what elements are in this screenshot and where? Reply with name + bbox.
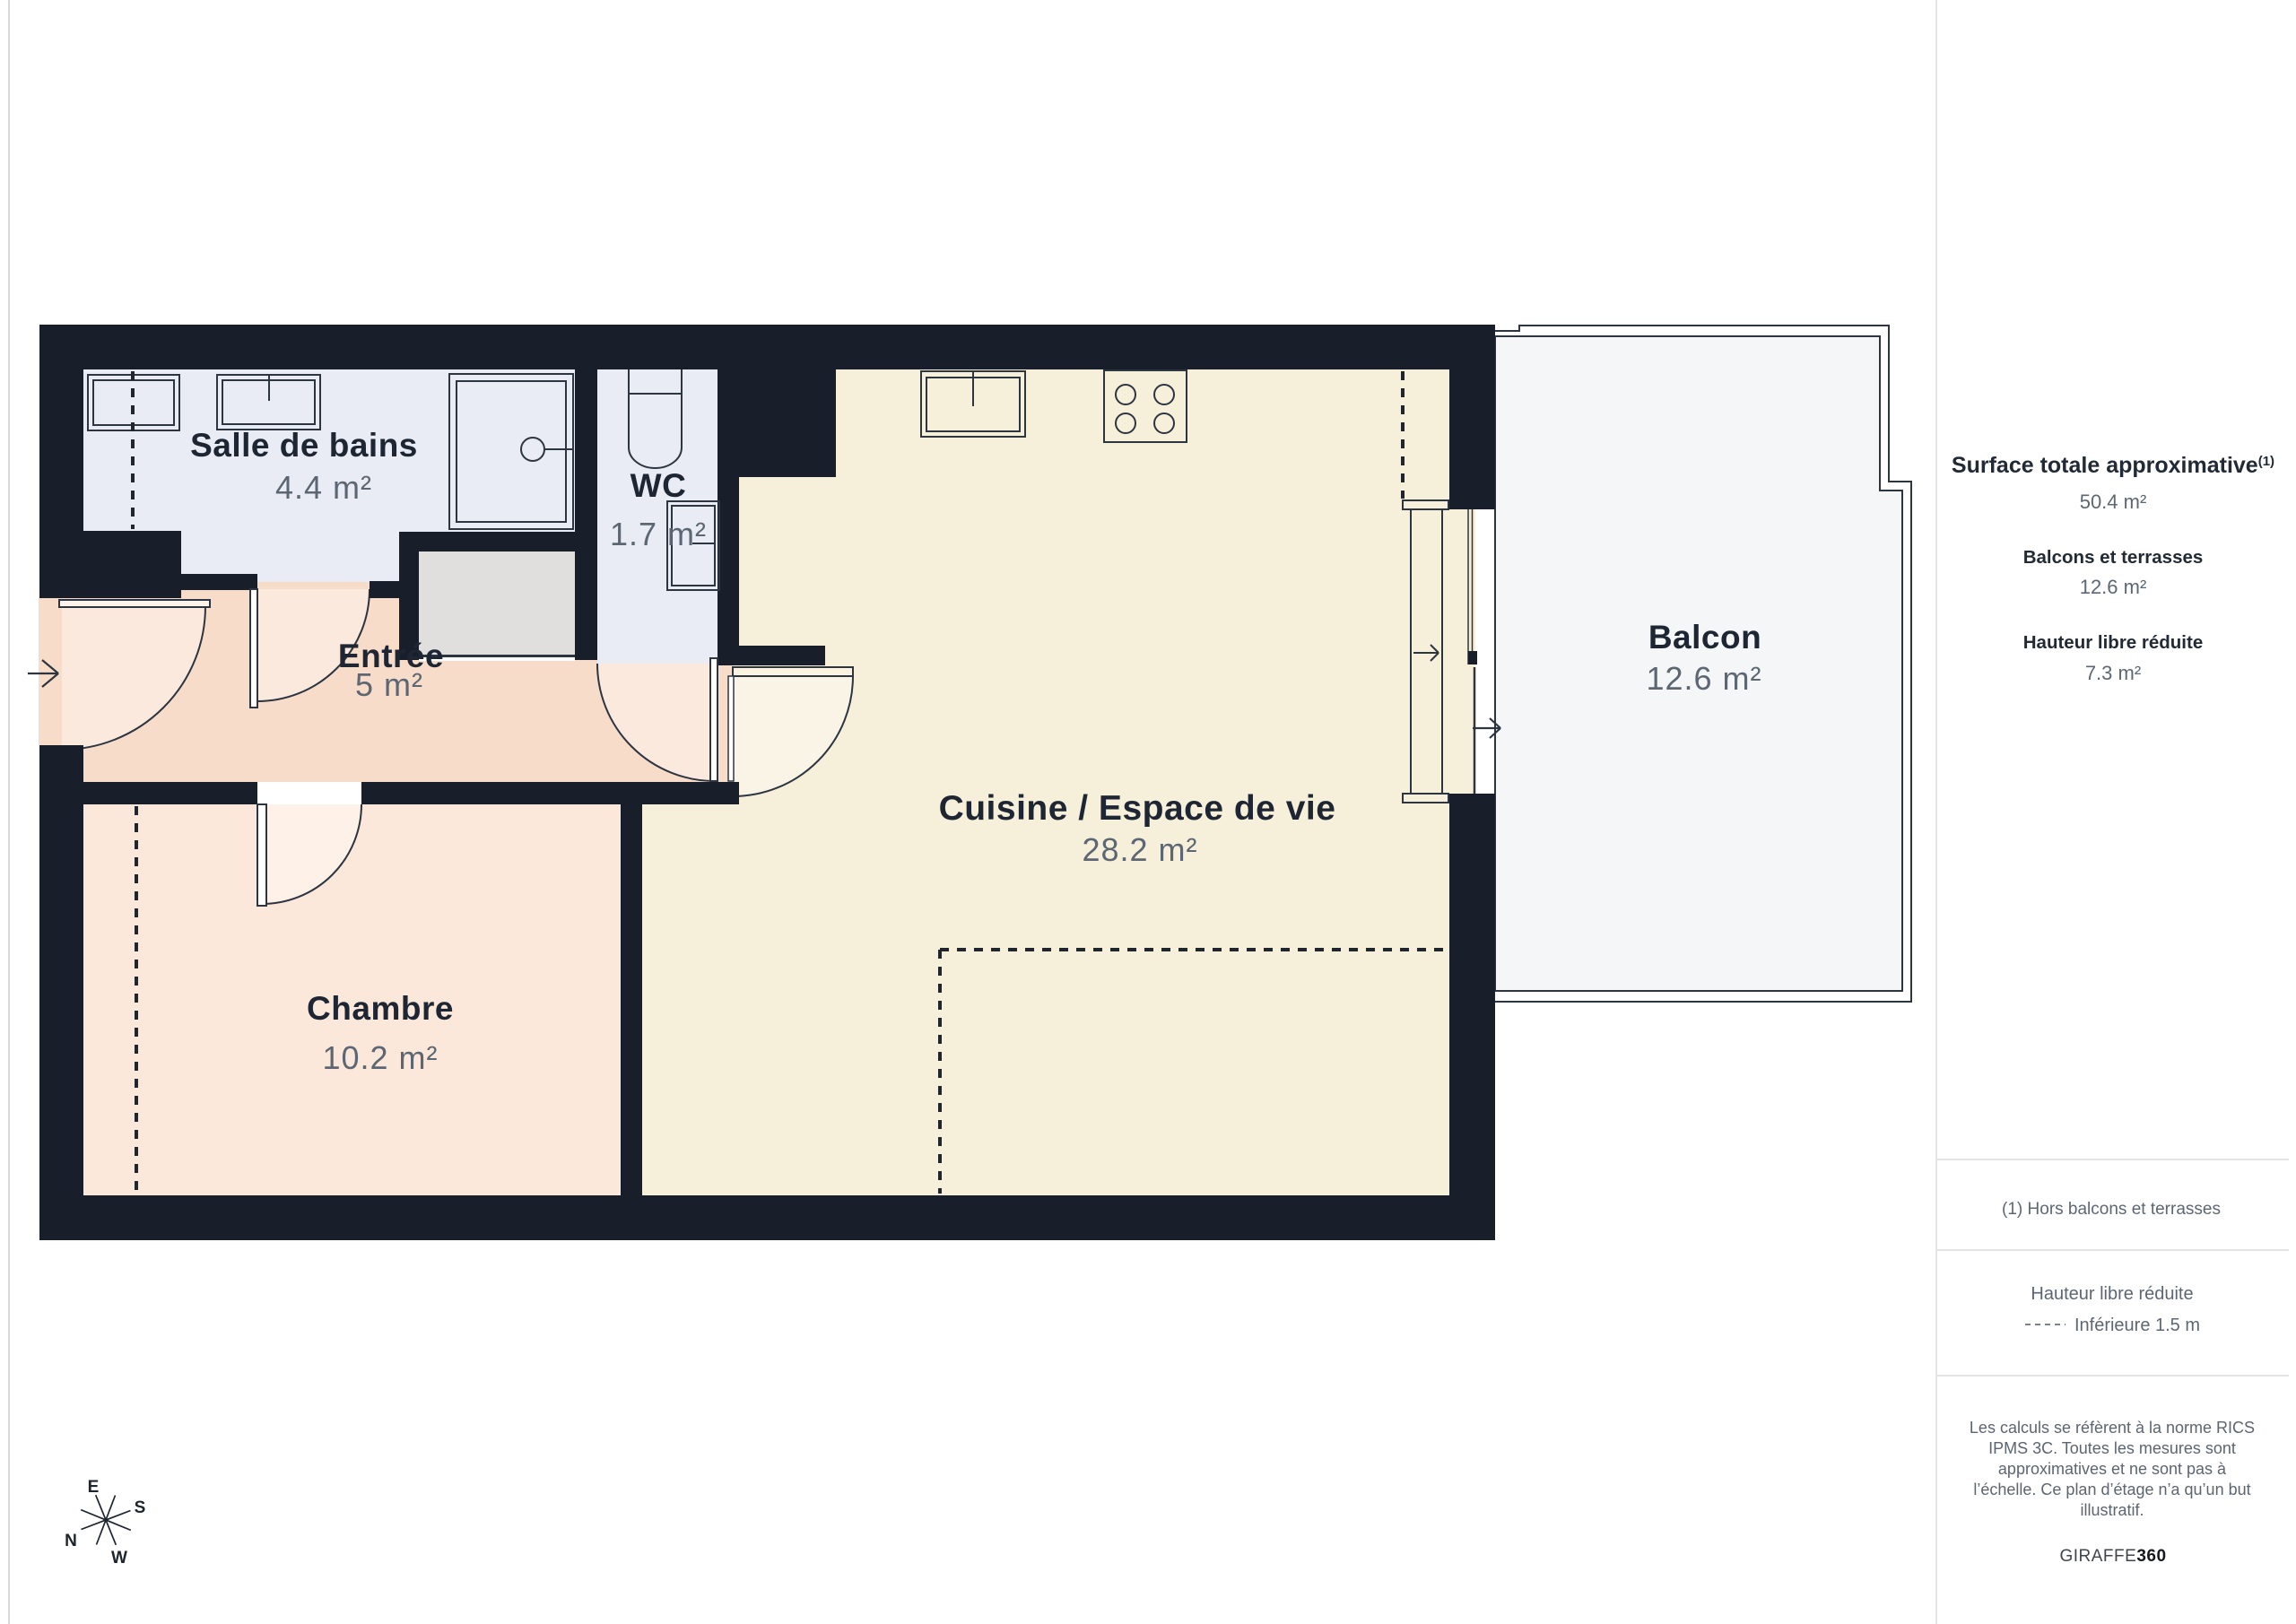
- svg-text:Les calculs se réfèrent à la n: Les calculs se réfèrent à la norme RICS: [1970, 1419, 2255, 1437]
- svg-text:Inférieure 1.5 m: Inférieure 1.5 m: [2074, 1316, 2200, 1335]
- svg-text:12.6 m²: 12.6 m²: [2080, 576, 2147, 598]
- svg-text:W: W: [111, 1549, 127, 1568]
- svg-text:IPMS 3C. Toutes les mesures so: IPMS 3C. Toutes les mesures sont: [1988, 1439, 2236, 1457]
- svg-text:4.4 m²: 4.4 m²: [275, 469, 372, 506]
- svg-text:10.2 m²: 10.2 m²: [322, 1039, 438, 1076]
- svg-text:Balcons et terrasses: Balcons et terrasses: [2023, 547, 2204, 568]
- svg-text:WC: WC: [631, 467, 687, 504]
- svg-text:28.2 m²: 28.2 m²: [1082, 831, 1197, 868]
- svg-text:Hauteur libre réduite: Hauteur libre réduite: [2031, 1284, 2193, 1304]
- svg-text:GIRAFFE360: GIRAFFE360: [2059, 1547, 2166, 1566]
- svg-text:7.3 m²: 7.3 m²: [2085, 662, 2141, 684]
- svg-text:Hauteur libre réduite: Hauteur libre réduite: [2023, 632, 2204, 653]
- svg-text:E: E: [88, 1478, 100, 1497]
- svg-text:S: S: [135, 1498, 146, 1517]
- svg-text:12.6 m²: 12.6 m²: [1646, 660, 1761, 697]
- svg-text:illustratif.: illustratif.: [2080, 1501, 2144, 1519]
- svg-text:Surface totale approximative(1: Surface totale approximative(1): [1952, 453, 2274, 478]
- svg-text:(1) Hors balcons et terrasses: (1) Hors balcons et terrasses: [2002, 1200, 2221, 1219]
- svg-text:Salle de bains: Salle de bains: [190, 427, 418, 464]
- svg-text:Chambre: Chambre: [307, 990, 454, 1027]
- svg-text:N: N: [65, 1532, 77, 1550]
- svg-text:Cuisine / Espace de vie: Cuisine / Espace de vie: [939, 789, 1336, 828]
- svg-text:5 m²: 5 m²: [355, 666, 423, 703]
- svg-text:1.7 m²: 1.7 m²: [610, 516, 707, 552]
- svg-text:l’échelle. Ce plan d’étage n’a: l’échelle. Ce plan d’étage n’a qu’un but: [1973, 1481, 2250, 1498]
- svg-text:approximatives et ne sont pas: approximatives et ne sont pas à: [1998, 1460, 2227, 1478]
- svg-text:Balcon: Balcon: [1648, 619, 1761, 656]
- svg-text:50.4 m²: 50.4 m²: [2080, 491, 2147, 513]
